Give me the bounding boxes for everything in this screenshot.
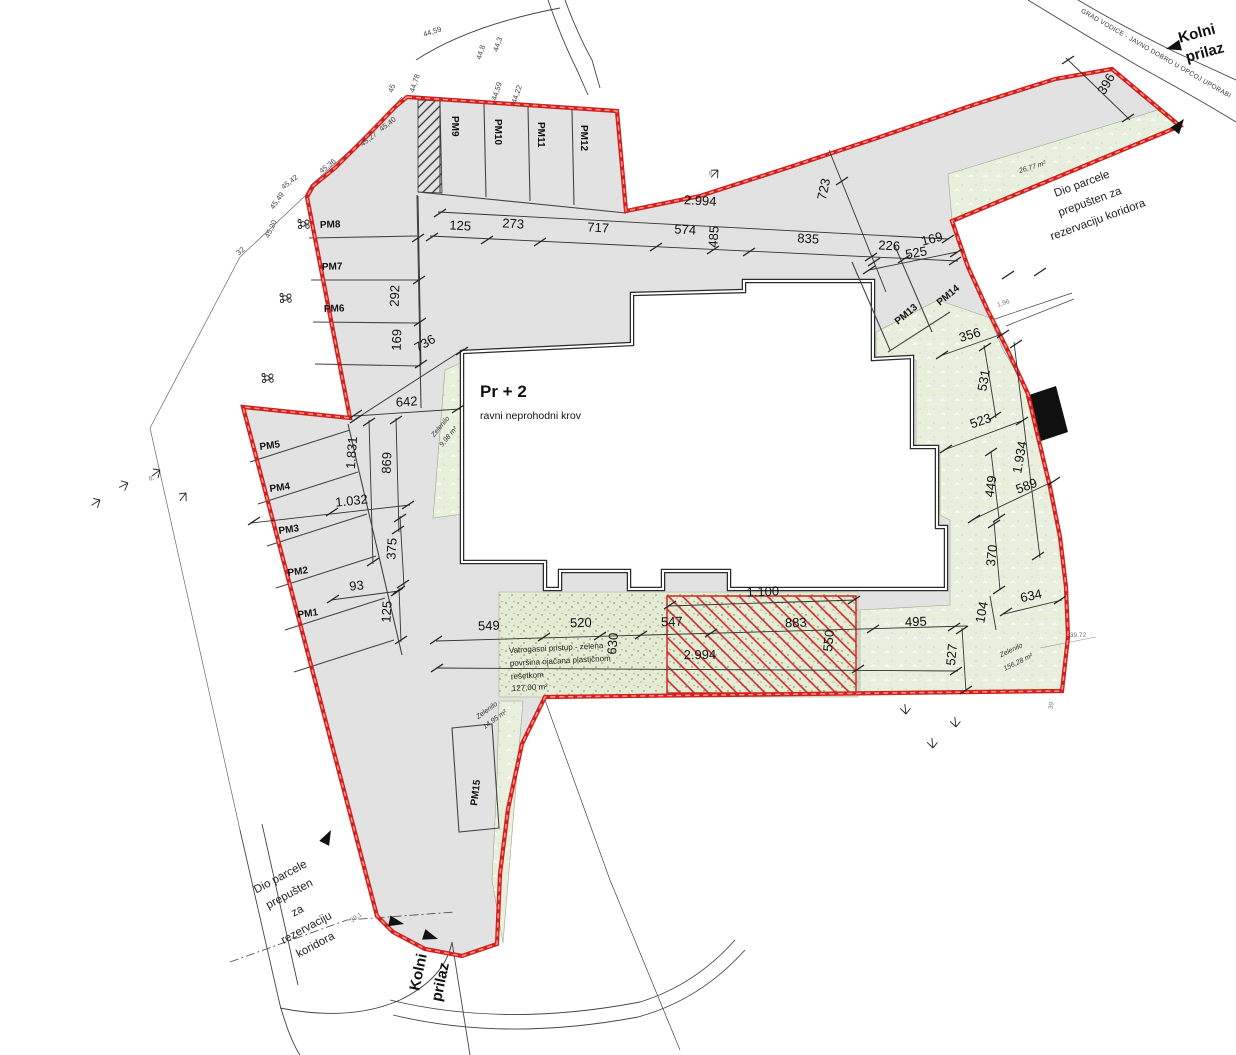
dim-125: 125: [449, 217, 471, 233]
dim-485: 485: [705, 226, 721, 248]
dim-449: 449: [982, 475, 1000, 499]
elev-39: 39: [1047, 701, 1055, 710]
survey-mark-8a: 8,: [148, 474, 155, 482]
parking-label-pm11: PM11: [535, 122, 546, 148]
parking-label-pm9: PM9: [449, 116, 460, 137]
dim-520: 520: [570, 615, 592, 631]
dim-273: 273: [502, 215, 524, 231]
dim-574: 574: [674, 221, 696, 237]
elev-32: 32: [234, 245, 246, 257]
dim-292: 292: [387, 285, 403, 307]
corridor-bl-line3: za: [289, 903, 306, 920]
elev-448: 44,8: [474, 44, 487, 61]
elev-4459a: 44,59: [422, 24, 443, 38]
elev-3972: 39,72: [1070, 632, 1087, 639]
crosswalk-hatch: [418, 100, 442, 193]
dim-550: 550: [820, 629, 837, 652]
dim-93: 93: [349, 577, 365, 593]
elev-4549: 45,49: [268, 190, 286, 211]
dim-547: 547: [661, 614, 683, 630]
fire-note-line3: rešetkom: [511, 670, 545, 681]
dim-495: 495: [905, 614, 927, 630]
dim-869: 869: [379, 452, 395, 474]
dim-2994-top: 2.994: [684, 192, 717, 209]
road-access-label-top: Kolni prilaz: [1177, 21, 1226, 66]
kolni-bottom-line2: prilaz: [428, 961, 453, 1003]
dim-226: 226: [878, 237, 900, 253]
shrub-symbols: [262, 220, 309, 383]
elev-443: 44,3: [491, 36, 504, 53]
elev-4422: 44,22: [509, 84, 523, 105]
dim-630: 630: [604, 632, 621, 655]
dim-2994-bottom: 2.994: [684, 647, 717, 663]
dim-883: 883: [785, 615, 807, 631]
elev-4478: 44,78: [407, 73, 421, 94]
corridor-note-bottom-left: Dio parcele prepušten za rezervaciju kor…: [252, 858, 337, 960]
parking-label-pm12: PM12: [578, 125, 589, 152]
dim-1831: 1.831: [343, 436, 360, 470]
fire-note-line4: 127,00 m²: [512, 682, 549, 693]
building-subtitle: ravni neprohodni krov: [480, 410, 582, 422]
dim-125b: 125: [378, 601, 394, 623]
dim-835: 835: [797, 230, 819, 246]
dim-717: 717: [587, 219, 609, 235]
elev-4520: 45,20: [263, 219, 279, 240]
dim-370: 370: [983, 544, 1000, 567]
parking-label-pm7: PM7: [322, 261, 343, 273]
dim-1100: 1.100: [746, 583, 779, 599]
dim-549: 549: [478, 618, 500, 634]
elev-4459b: 44,59: [489, 81, 503, 102]
dim-169b: 169: [389, 329, 405, 351]
parking-label-pm10: PM10: [492, 119, 503, 146]
dim-196: 1,96: [996, 298, 1011, 309]
parking-label-pm6: PM6: [324, 303, 345, 315]
kolni-bottom-line1: Kolni: [406, 952, 430, 992]
dim-642: 642: [395, 393, 418, 409]
dim-527: 527: [943, 643, 960, 666]
arrow-kolni-top: [1165, 40, 1182, 55]
site-plan-page: 125 273 717 574 485 835 226 169 2.994 72…: [0, 0, 1236, 1055]
site-plan-drawing: 125 273 717 574 485 835 226 169 2.994 72…: [0, 0, 1236, 1055]
elev-391: 39,1: [349, 911, 364, 924]
building-title: Pr + 2: [480, 382, 527, 401]
elev-45: 45: [386, 83, 397, 94]
corridor-note-top-right: Dio parcele prepušten za rezervaciju kor…: [1049, 169, 1148, 243]
arrow-boundary-left: [319, 828, 336, 846]
dim-375: 375: [383, 538, 399, 560]
parking-label-pm8: PM8: [320, 219, 341, 231]
elev-4542: 45,42: [279, 173, 299, 192]
